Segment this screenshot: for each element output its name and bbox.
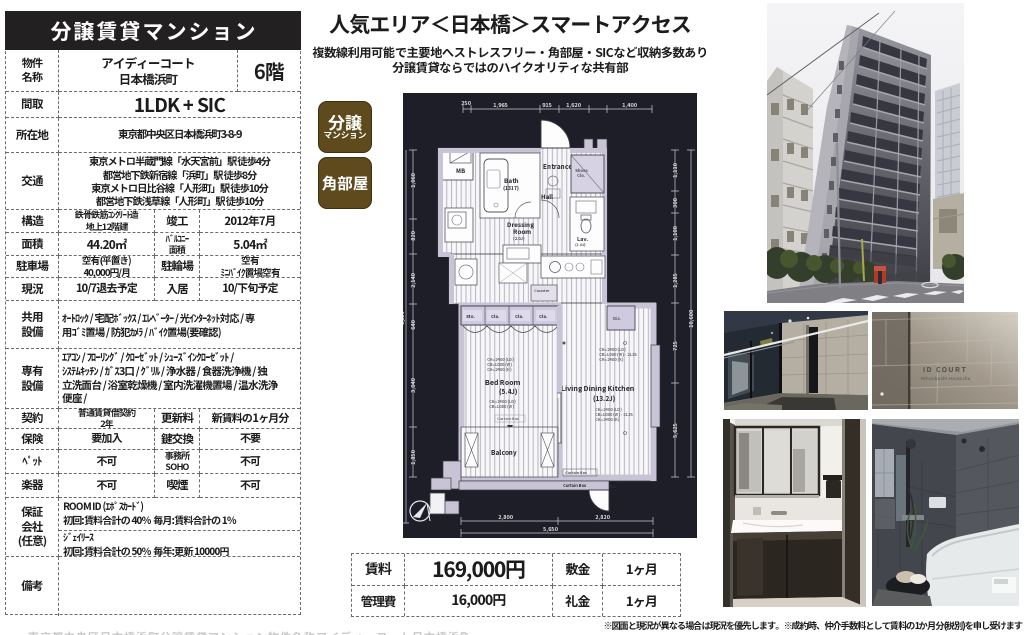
svg-text:Sto.: Sto. — [466, 314, 476, 320]
svg-text:1,285: 1,285 — [671, 272, 679, 288]
svg-text:CH=2400 (K): CH=2400 (K) — [595, 417, 619, 423]
svg-text:10,600: 10,600 — [687, 310, 695, 328]
svg-text:1,100: 1,100 — [671, 226, 679, 241]
svg-text:(5.4J): (5.4J) — [499, 386, 517, 396]
svg-text:CB=1080 (W): CB=1080 (W) — [489, 404, 514, 410]
svg-text:Hall: Hall — [541, 192, 553, 201]
svg-text:CH=2400 (K): CH=2400 (K) — [599, 357, 623, 363]
svg-text:(13.2J): (13.2J) — [593, 393, 615, 403]
svg-text:Balcony: Balcony — [491, 447, 517, 457]
svg-text:5,650: 5,650 — [543, 525, 558, 533]
svg-text:1,965: 1,965 — [493, 101, 509, 109]
svg-text:CH=2400 (H): CH=2400 (H) — [487, 367, 511, 373]
svg-text:3,040: 3,040 — [409, 378, 417, 393]
svg-text:1,850: 1,850 — [409, 450, 417, 465]
svg-text:2,820: 2,820 — [595, 513, 610, 521]
svg-text:Clo.: Clo. — [515, 314, 524, 320]
svg-text:Curtain Box: Curtain Box — [497, 417, 520, 422]
svg-text:8,210: 8,210 — [403, 312, 406, 326]
svg-text:Clo.: Clo. — [491, 314, 500, 320]
svg-text:Curtain Box: Curtain Box — [563, 483, 587, 489]
svg-text:1,620: 1,620 — [566, 101, 581, 109]
svg-text:Dis.: Dis. — [613, 316, 621, 322]
svg-text:Clo.: Clo. — [539, 314, 548, 320]
svg-text:2,800: 2,800 — [498, 513, 513, 521]
svg-text:Counter: Counter — [534, 289, 550, 294]
svg-text:(1317): (1317) — [503, 185, 519, 192]
svg-text:1,110: 1,110 — [671, 163, 679, 178]
svg-text:Entrance: Entrance — [543, 161, 572, 171]
svg-text:(1.0J): (1.0J) — [575, 243, 586, 248]
svg-text:5,625: 5,625 — [671, 422, 679, 438]
svg-text:1,060: 1,060 — [409, 173, 417, 188]
svg-text:725: 725 — [671, 341, 679, 351]
svg-text:640: 640 — [409, 320, 417, 330]
svg-text:MB: MB — [456, 166, 465, 175]
svg-text:2,140: 2,140 — [409, 273, 417, 288]
svg-text:1,400: 1,400 — [622, 101, 637, 109]
svg-text:250: 250 — [461, 99, 471, 107]
svg-text:Curtain Box: Curtain Box — [565, 471, 588, 476]
svg-text:750: 750 — [609, 484, 616, 490]
svg-text:(2.0J): (2.0J) — [513, 236, 524, 242]
svg-text:915: 915 — [542, 101, 552, 109]
svg-text:300: 300 — [671, 198, 679, 208]
svg-text:Lav.: Lav. — [577, 235, 589, 243]
svg-text:Room: Room — [513, 227, 531, 236]
svg-text:Bath: Bath — [504, 176, 519, 185]
svg-text:Nihonbashi Hamacho: Nihonbashi Hamacho — [921, 376, 972, 382]
svg-text:ID COURT: ID COURT — [923, 365, 967, 375]
svg-text:Clo.: Clo. — [577, 173, 586, 179]
svg-text:820: 820 — [409, 231, 417, 242]
